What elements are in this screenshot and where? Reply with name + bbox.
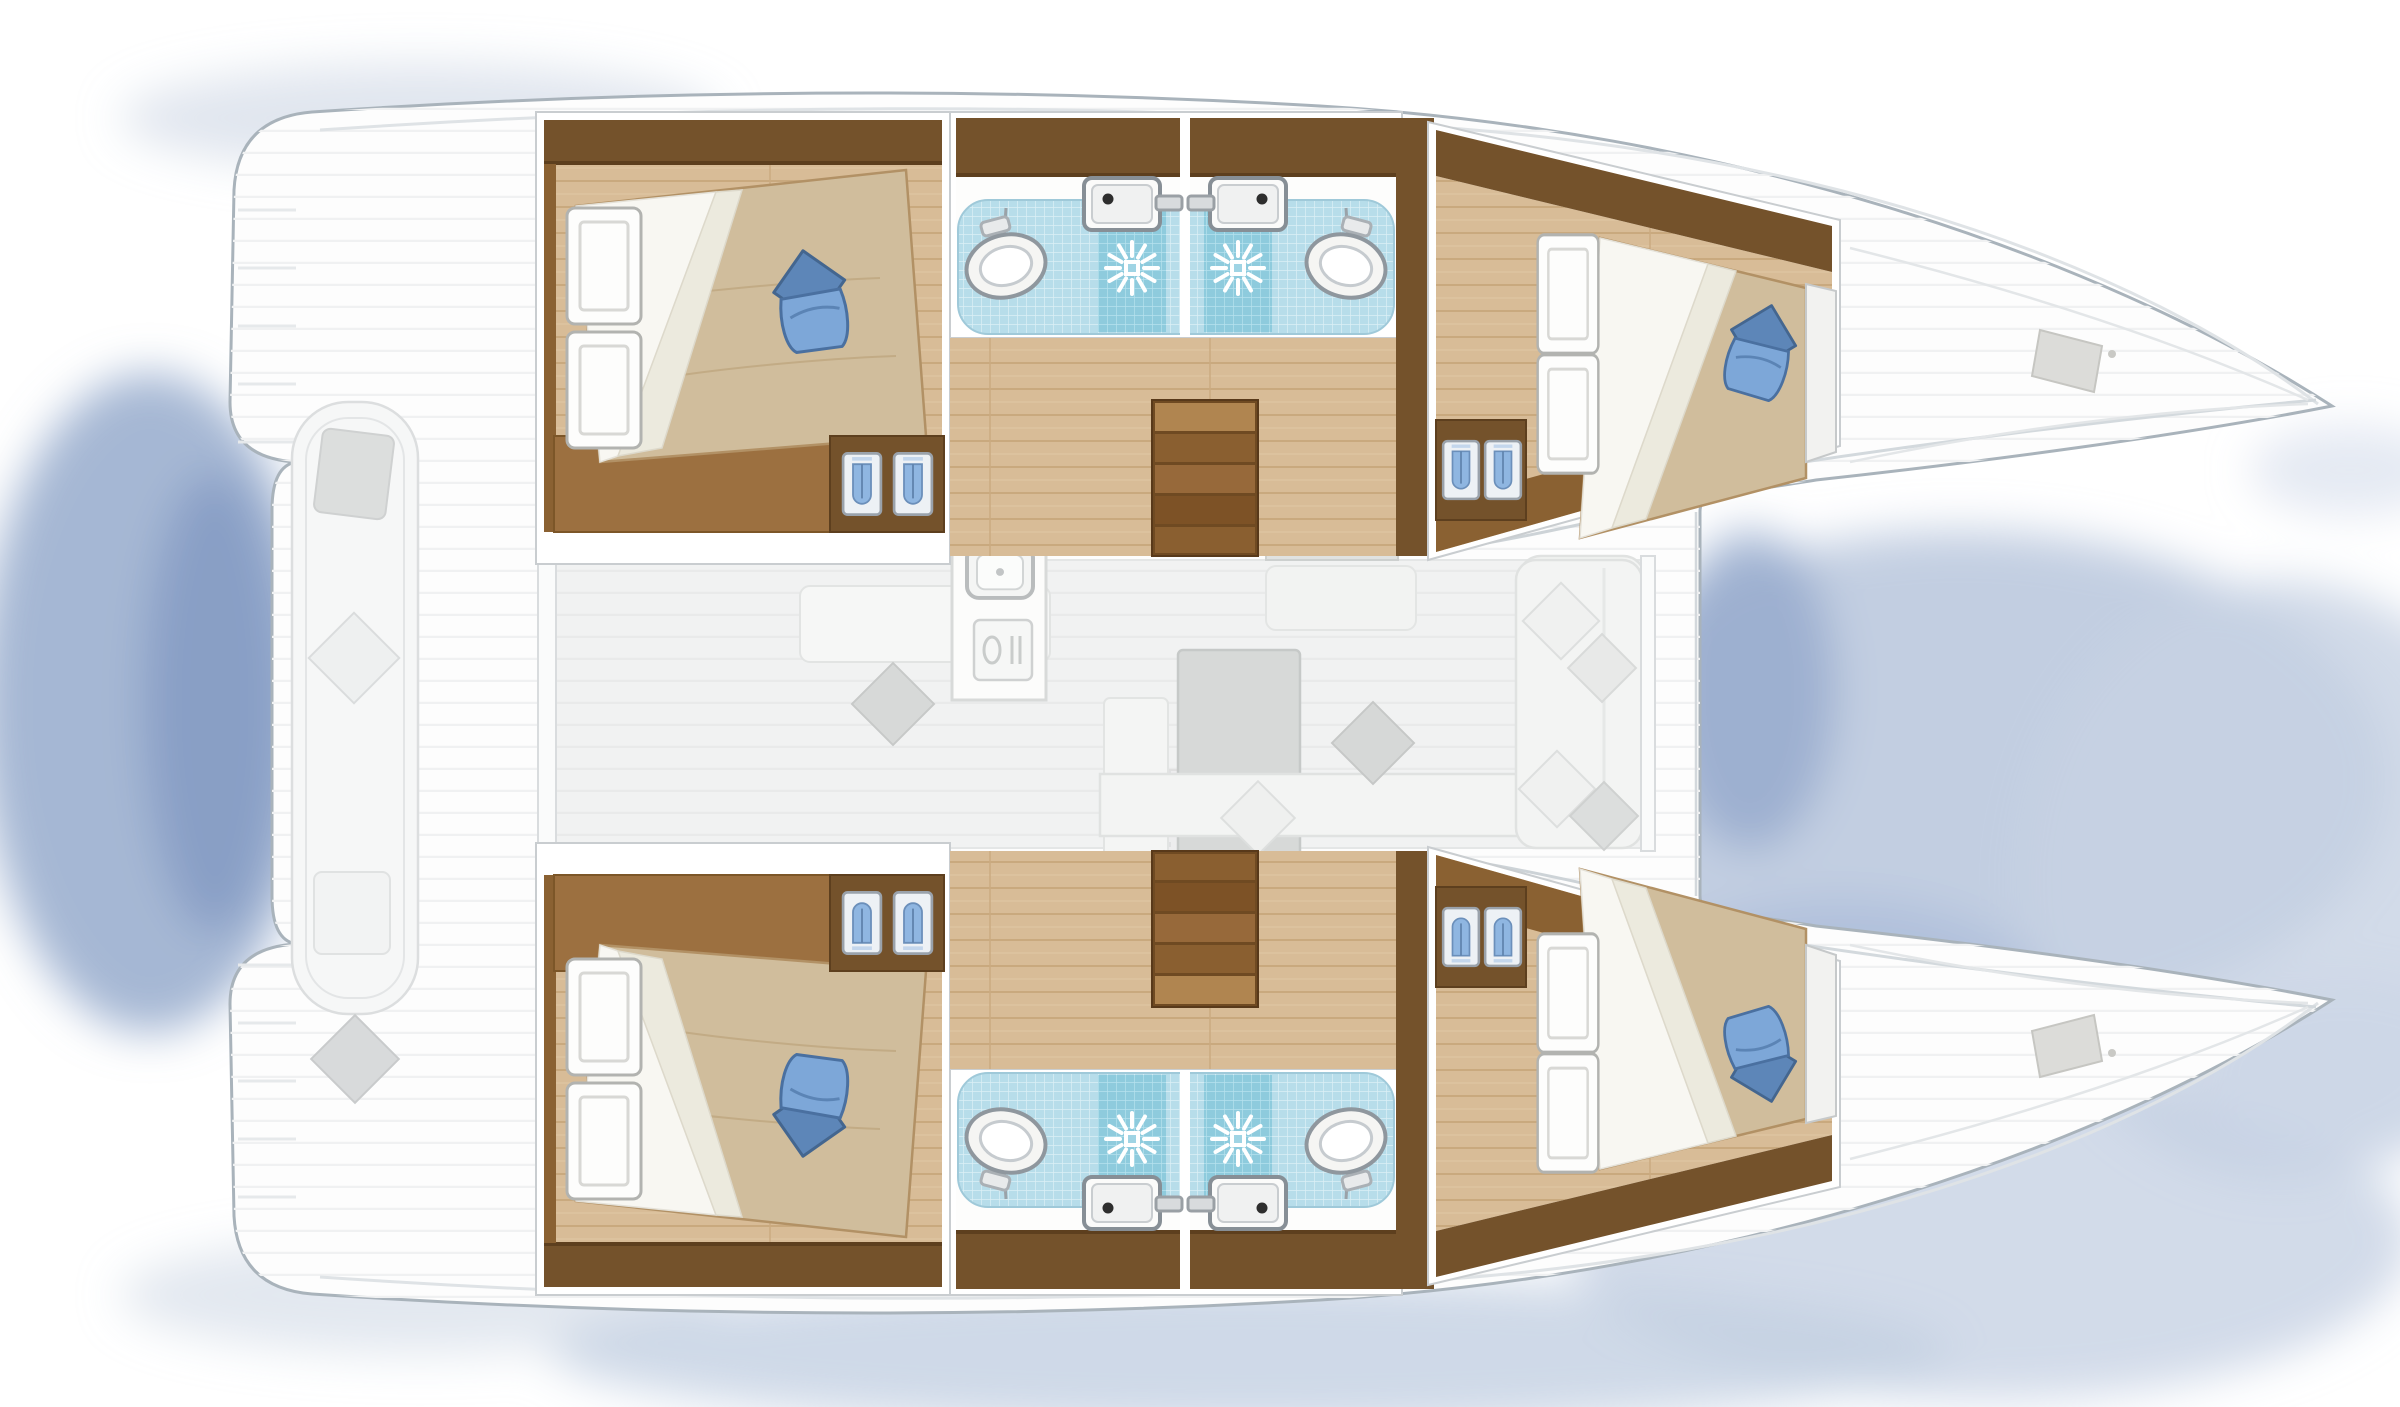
floor-plan-canvas <box>0 0 2400 1407</box>
cockpit-sliding-door <box>538 556 556 848</box>
seat-cushion <box>313 428 395 520</box>
aft-notch-shadow-core <box>145 473 285 933</box>
catamaran-floor-plan <box>0 0 2400 1407</box>
dinette-seat <box>1104 698 1168 778</box>
windshield <box>1641 556 1655 851</box>
seat-cushion <box>314 872 390 954</box>
nav-bench <box>1266 566 1416 630</box>
